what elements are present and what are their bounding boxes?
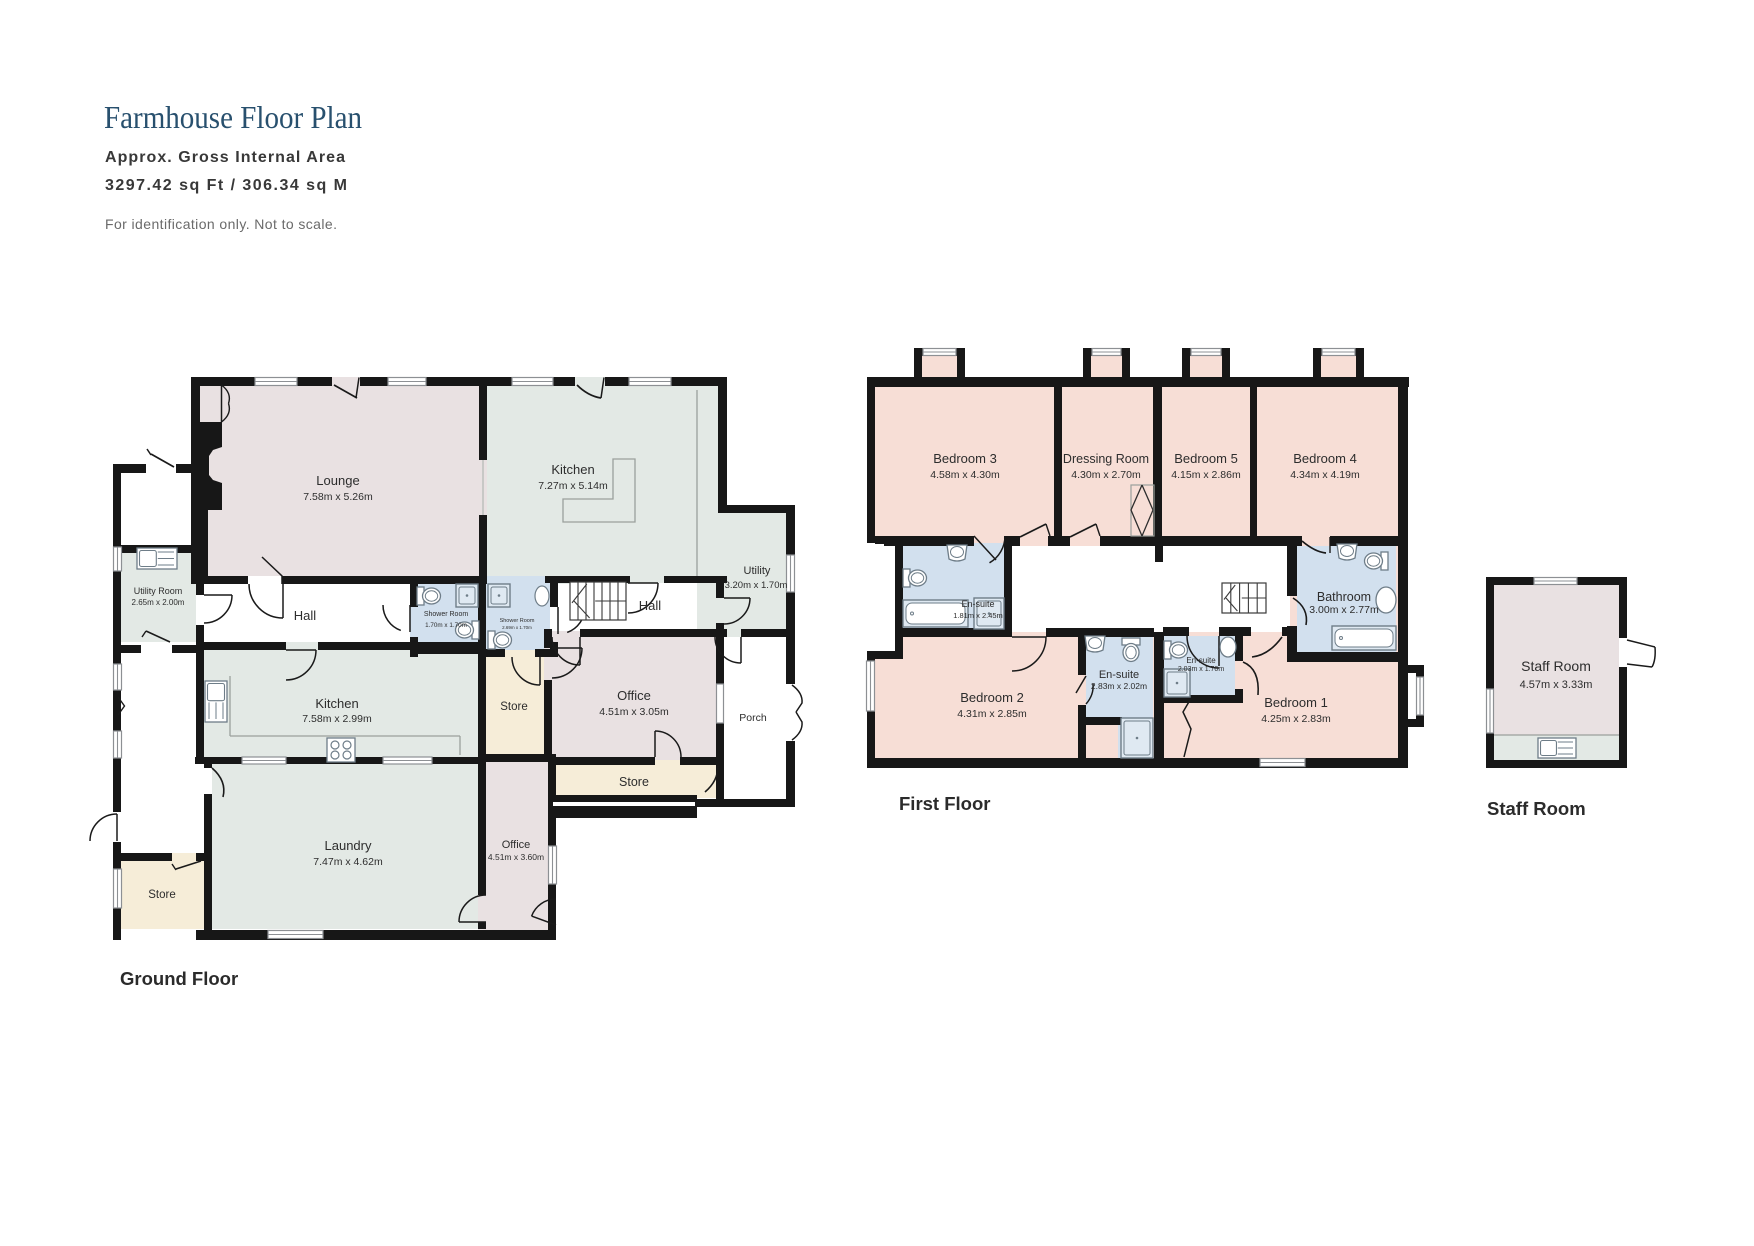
svg-text:2.69m x 1.70m: 2.69m x 1.70m — [502, 625, 532, 630]
svg-text:Utility: Utility — [744, 565, 771, 577]
svg-text:7.47m x 4.62m: 7.47m x 4.62m — [313, 856, 383, 868]
svg-text:Utility Room: Utility Room — [134, 586, 183, 596]
svg-text:3297.42 sq Ft / 306.34 sq M: 3297.42 sq Ft / 306.34 sq M — [105, 177, 347, 194]
svg-text:4.15m x 2.86m: 4.15m x 2.86m — [1171, 469, 1241, 481]
svg-text:Hall: Hall — [294, 608, 317, 623]
svg-text:Staff Room: Staff Room — [1521, 658, 1591, 674]
svg-text:Bedroom 3: Bedroom 3 — [933, 451, 997, 466]
svg-text:Laundry: Laundry — [325, 838, 372, 853]
svg-text:4.25m x 2.83m: 4.25m x 2.83m — [1261, 713, 1331, 725]
svg-text:4.51m x 3.60m: 4.51m x 3.60m — [488, 852, 544, 862]
svg-text:Kitchen: Kitchen — [315, 696, 358, 711]
svg-text:Store: Store — [619, 775, 649, 789]
svg-text:7.58m x 2.99m: 7.58m x 2.99m — [302, 713, 372, 725]
svg-text:2.83m x 2.02m: 2.83m x 2.02m — [1091, 681, 1147, 691]
svg-text:Approx. Gross Internal Area: Approx. Gross Internal Area — [105, 149, 345, 166]
svg-text:Dressing Room: Dressing Room — [1063, 452, 1149, 466]
svg-text:Office: Office — [617, 688, 651, 703]
svg-text:Bedroom 2: Bedroom 2 — [960, 690, 1024, 705]
svg-text:7.58m x 5.26m: 7.58m x 5.26m — [303, 491, 373, 503]
svg-text:3.00m x 2.77m: 3.00m x 2.77m — [1309, 604, 1379, 616]
svg-text:4.34m x 4.19m: 4.34m x 4.19m — [1290, 469, 1360, 481]
svg-text:Kitchen: Kitchen — [551, 462, 594, 477]
svg-text:Staff Room: Staff Room — [1487, 798, 1586, 819]
svg-text:Lounge: Lounge — [316, 473, 359, 488]
svg-text:Store: Store — [500, 701, 528, 713]
svg-text:En-suite: En-suite — [1099, 669, 1139, 681]
svg-text:4.51m x 3.05m: 4.51m x 3.05m — [599, 706, 669, 718]
svg-text:4.57m x 3.33m: 4.57m x 3.33m — [1520, 679, 1593, 691]
svg-text:Store: Store — [148, 889, 176, 901]
svg-text:Porch: Porch — [739, 712, 767, 724]
svg-text:Bedroom 1: Bedroom 1 — [1264, 695, 1328, 710]
svg-text:7.27m x 5.14m: 7.27m x 5.14m — [538, 480, 608, 492]
svg-text:En-suite: En-suite — [1186, 656, 1216, 665]
svg-text:1.81m x 2.45m: 1.81m x 2.45m — [953, 611, 1003, 620]
svg-text:3.20m x 1.70m: 3.20m x 1.70m — [725, 580, 788, 591]
svg-text:4.31m x 2.85m: 4.31m x 2.85m — [957, 708, 1027, 720]
svg-text:Shower Room: Shower Room — [500, 618, 535, 624]
svg-text:4.58m x 4.30m: 4.58m x 4.30m — [930, 469, 1000, 481]
svg-text:Bedroom 4: Bedroom 4 — [1293, 451, 1357, 466]
svg-text:1.70m x 1.70m: 1.70m x 1.70m — [425, 622, 467, 629]
svg-text:4.30m x 2.70m: 4.30m x 2.70m — [1071, 469, 1141, 481]
svg-text:For identification only. Not t: For identification only. Not to scale. — [105, 216, 337, 232]
svg-text:First Floor: First Floor — [899, 793, 990, 814]
svg-text:2.65m x 2.00m: 2.65m x 2.00m — [132, 598, 185, 607]
svg-text:En-suite: En-suite — [961, 599, 994, 609]
svg-text:Office: Office — [502, 839, 531, 851]
svg-text:Bedroom 5: Bedroom 5 — [1174, 451, 1238, 466]
svg-text:Hall: Hall — [639, 598, 662, 613]
svg-text:Shower Room: Shower Room — [424, 611, 469, 618]
svg-text:Ground Floor: Ground Floor — [120, 968, 238, 989]
svg-text:2.03m x 1.70m: 2.03m x 1.70m — [1178, 666, 1224, 673]
svg-text:Farmhouse Floor Plan: Farmhouse Floor Plan — [104, 99, 362, 135]
svg-text:Bathroom: Bathroom — [1317, 590, 1371, 604]
